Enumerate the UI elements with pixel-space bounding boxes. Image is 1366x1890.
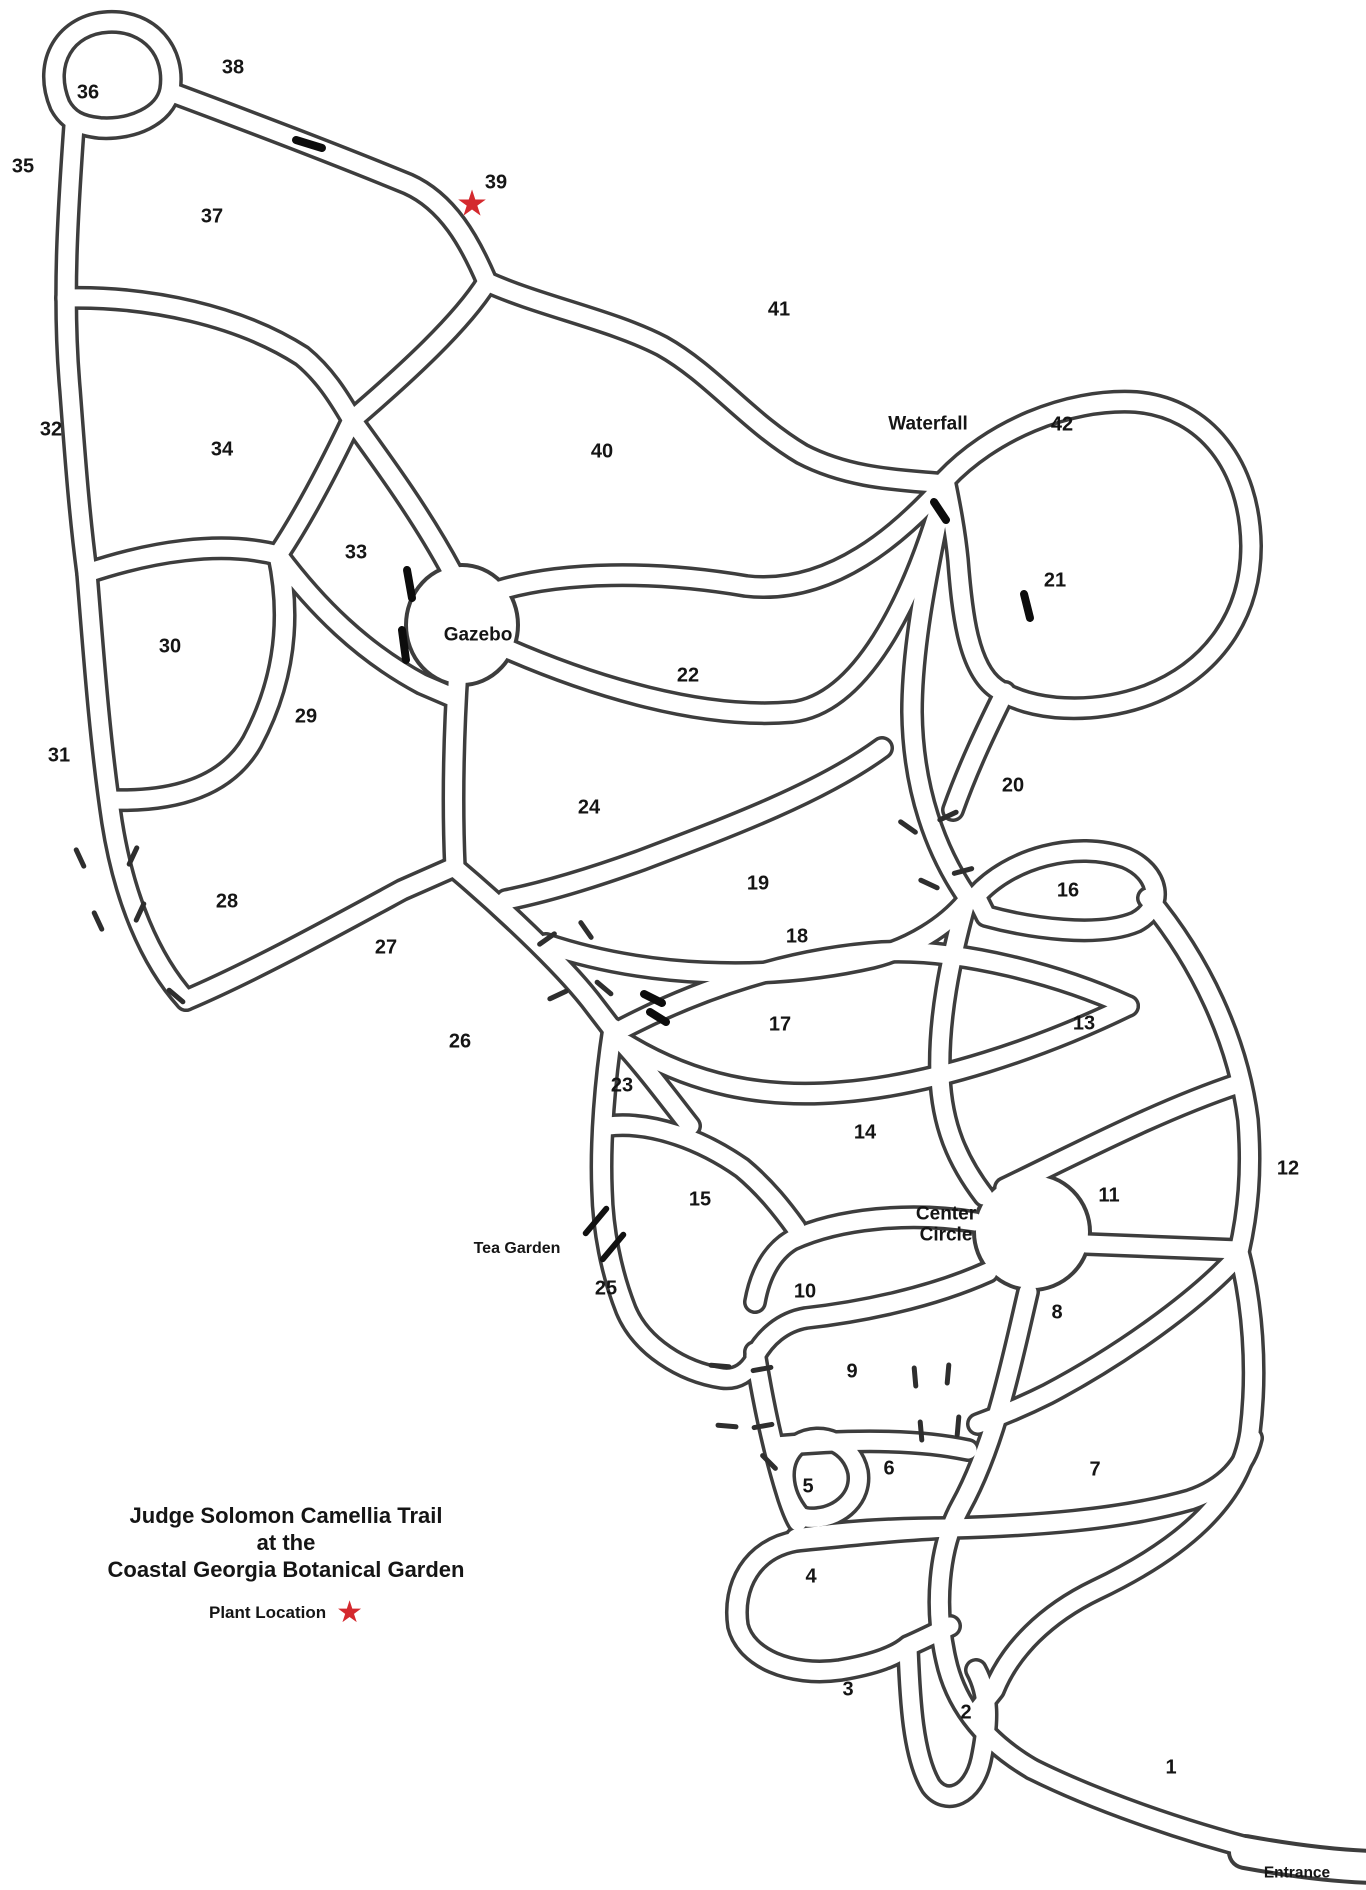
bed-label-24: 24	[578, 797, 600, 820]
bed-label-15: 15	[689, 1189, 711, 1212]
bed-label-20: 20	[1002, 775, 1024, 798]
bed-label-1: 1	[1165, 1757, 1176, 1780]
landmark-label-waterfall: Waterfall	[888, 413, 968, 434]
map-title-line3: Coastal Georgia Botanical Garden	[76, 1556, 496, 1583]
bed-label-23: 23	[611, 1075, 633, 1098]
bed-label-31: 31	[48, 745, 70, 768]
bed-label-25: 25	[595, 1278, 617, 1301]
bed-label-16: 16	[1057, 880, 1079, 903]
bed-label-26: 26	[449, 1031, 471, 1054]
bed-label-4: 4	[805, 1566, 816, 1589]
bed-label-22: 22	[677, 665, 699, 688]
map-title-line2: at the	[76, 1529, 496, 1556]
bed-label-41: 41	[768, 299, 790, 322]
bed-label-10: 10	[794, 1281, 816, 1304]
bed-label-14: 14	[854, 1122, 876, 1145]
map-title: Judge Solomon Camellia Trail at the Coas…	[76, 1502, 496, 1583]
bed-label-38: 38	[222, 57, 244, 80]
bed-label-32: 32	[40, 419, 62, 442]
landmark-label-center-circle: Center Circle	[916, 1204, 976, 1247]
legend-label: Plant Location	[209, 1603, 326, 1623]
camellia-trail-map: 1234567891011121314151617181920212223242…	[0, 0, 1366, 1890]
bed-label-6: 6	[883, 1458, 894, 1481]
bed-label-18: 18	[786, 926, 808, 949]
bed-label-33: 33	[345, 542, 367, 565]
red-star-icon: ★	[456, 186, 488, 222]
bed-label-30: 30	[159, 636, 181, 659]
bed-label-37: 37	[201, 206, 223, 229]
red-star-icon: ★	[336, 1598, 363, 1628]
bed-label-40: 40	[591, 441, 613, 464]
bed-label-8: 8	[1051, 1302, 1062, 1325]
landmark-label-entrance: Entrance	[1264, 1864, 1330, 1881]
bed-label-21: 21	[1044, 570, 1066, 593]
bed-label-34: 34	[211, 439, 233, 462]
bed-label-35: 35	[12, 156, 34, 179]
bed-label-7: 7	[1089, 1459, 1100, 1482]
bed-label-12: 12	[1277, 1158, 1299, 1181]
bed-label-29: 29	[295, 706, 317, 729]
landmark-label-gazebo: Gazebo	[444, 624, 513, 645]
bed-label-36: 36	[77, 82, 99, 105]
legend: Plant Location ★	[76, 1598, 496, 1628]
bed-label-19: 19	[747, 873, 769, 896]
bed-label-17: 17	[769, 1014, 791, 1037]
bed-label-2: 2	[960, 1702, 971, 1725]
bed-label-42: 42	[1051, 414, 1073, 437]
landmark-label-tea-garden: Tea Garden	[474, 1240, 561, 1258]
bed-label-13: 13	[1073, 1013, 1095, 1036]
bed-label-5: 5	[802, 1476, 813, 1499]
bed-label-39: 39	[485, 172, 507, 195]
map-title-line1: Judge Solomon Camellia Trail	[76, 1502, 496, 1529]
bed-label-3: 3	[842, 1679, 853, 1702]
bed-label-27: 27	[375, 937, 397, 960]
bed-label-9: 9	[846, 1361, 857, 1384]
bed-label-28: 28	[216, 891, 238, 914]
bed-label-11: 11	[1098, 1185, 1119, 1208]
